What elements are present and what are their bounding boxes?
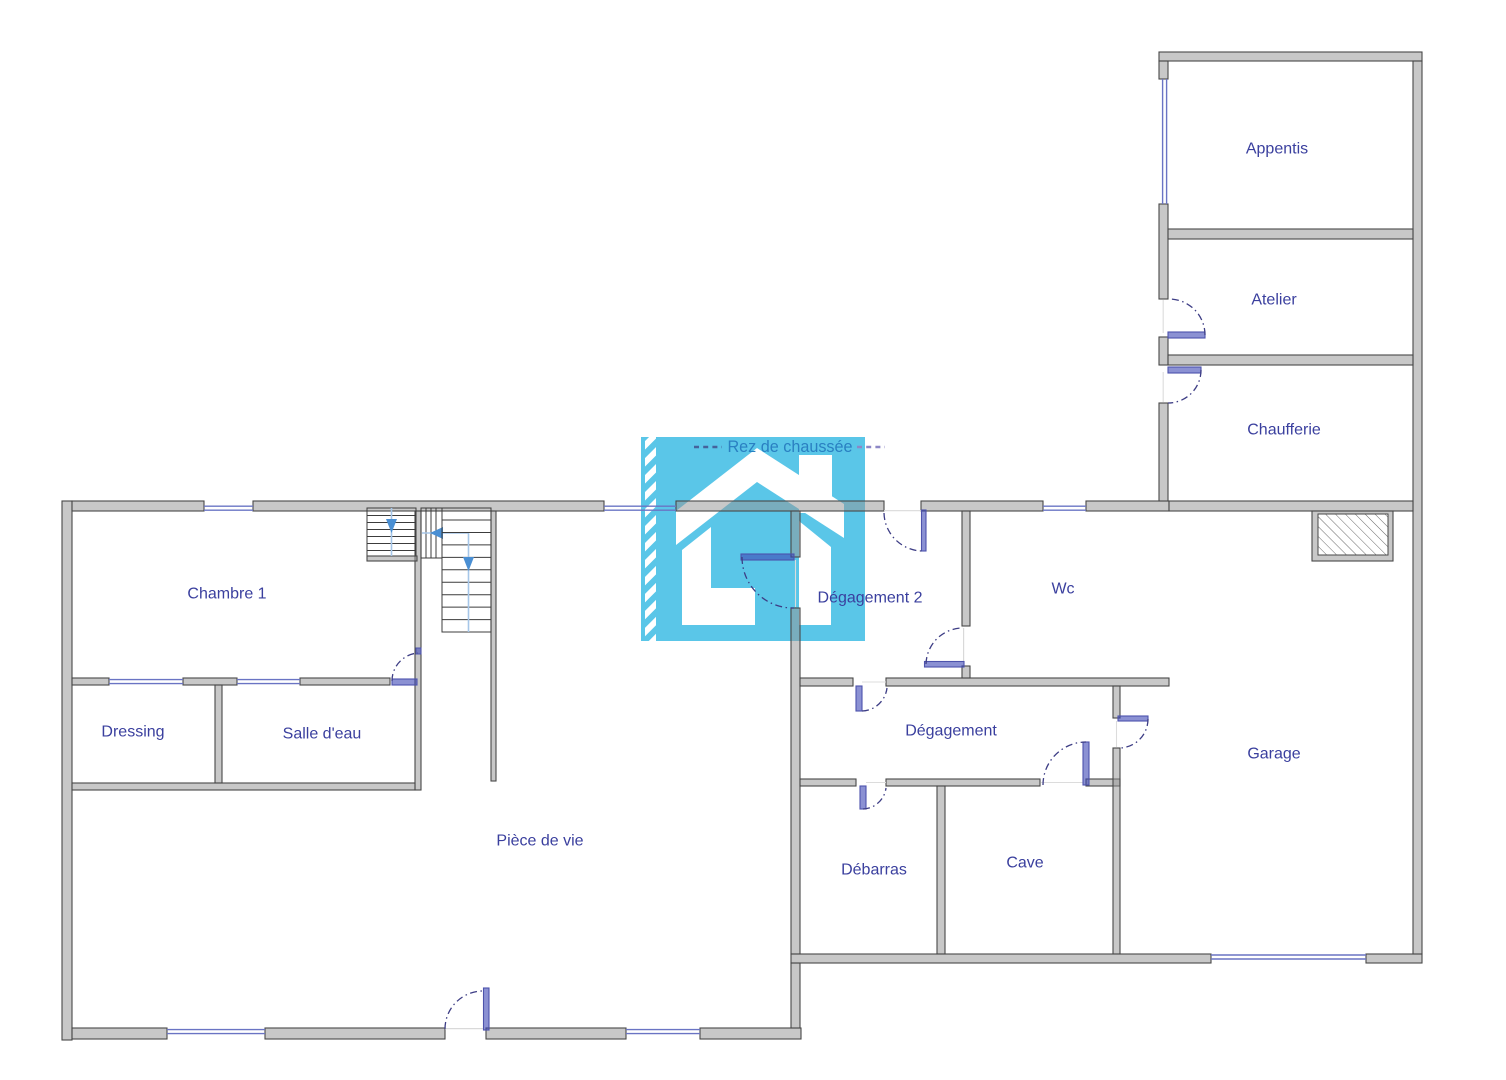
svg-text:Dégagement 2: Dégagement 2 <box>818 590 923 607</box>
svg-text:Wc: Wc <box>1051 581 1074 598</box>
svg-text:Garage: Garage <box>1247 746 1300 763</box>
svg-text:Chambre 1: Chambre 1 <box>187 586 266 603</box>
svg-text:Appentis: Appentis <box>1246 141 1308 158</box>
svg-text:Rez de chaussée: Rez de chaussée <box>727 438 852 456</box>
svg-text:Atelier: Atelier <box>1251 292 1297 309</box>
svg-text:Salle d'eau: Salle d'eau <box>283 726 362 743</box>
svg-text:Dégagement: Dégagement <box>905 723 997 740</box>
svg-text:Pièce de vie: Pièce de vie <box>496 833 583 850</box>
svg-text:Cave: Cave <box>1006 855 1043 872</box>
svg-text:Dressing: Dressing <box>101 724 164 741</box>
svg-text:Chaufferie: Chaufferie <box>1247 422 1321 439</box>
svg-text:Débarras: Débarras <box>841 862 907 879</box>
